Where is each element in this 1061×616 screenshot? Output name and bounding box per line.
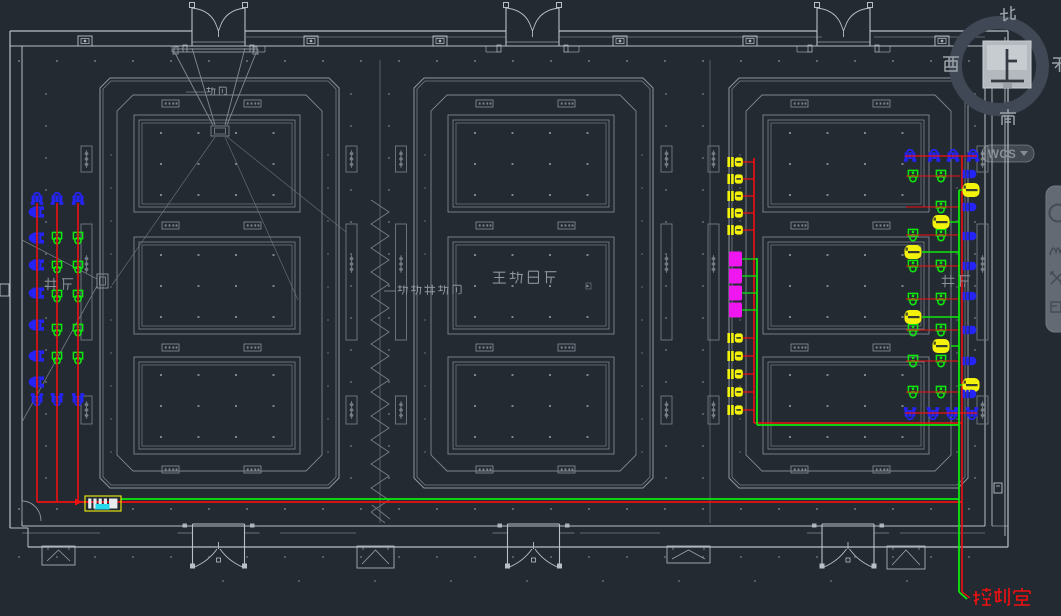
svg-text:WCS: WCS bbox=[988, 149, 1016, 161]
